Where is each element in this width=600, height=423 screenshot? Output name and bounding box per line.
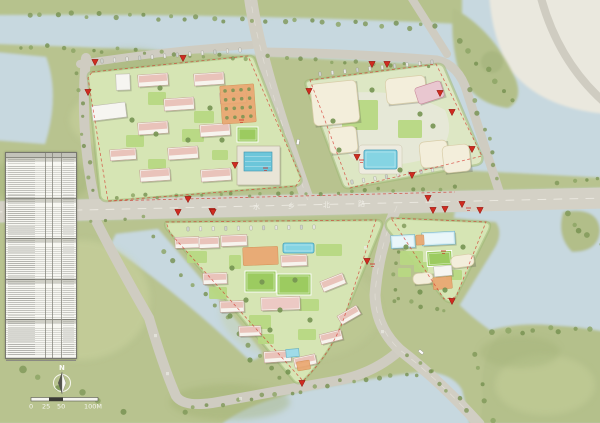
tree bbox=[156, 17, 160, 21]
tree bbox=[530, 328, 535, 333]
tree bbox=[363, 188, 367, 192]
tree bbox=[81, 101, 85, 105]
tree bbox=[325, 384, 330, 389]
parked-car bbox=[331, 70, 334, 74]
tree bbox=[191, 283, 195, 287]
tree bbox=[276, 192, 280, 196]
parked-car bbox=[126, 57, 129, 61]
grove-tree bbox=[243, 297, 248, 302]
parked-car bbox=[393, 64, 396, 68]
tree bbox=[489, 329, 495, 335]
tree bbox=[481, 382, 485, 386]
building-white bbox=[116, 74, 132, 92]
tree bbox=[584, 232, 590, 238]
tree bbox=[482, 398, 487, 403]
tree bbox=[240, 17, 245, 22]
tree bbox=[491, 163, 495, 167]
grove-tree bbox=[460, 244, 465, 249]
scale-tick-label: 0 bbox=[29, 403, 33, 411]
tree bbox=[520, 331, 525, 336]
grove-tree bbox=[227, 313, 232, 318]
tree bbox=[104, 219, 107, 222]
building-lawn bbox=[187, 251, 207, 263]
site-plan: 水乡北路 N 02550100M bbox=[0, 0, 600, 423]
tree bbox=[596, 177, 599, 180]
tree bbox=[379, 24, 384, 29]
tree bbox=[442, 309, 445, 312]
building-lawn bbox=[298, 329, 316, 340]
building-res bbox=[138, 73, 170, 89]
building-court bbox=[237, 127, 258, 142]
grove-tree bbox=[403, 244, 408, 249]
tree bbox=[258, 192, 261, 195]
building-pool bbox=[283, 243, 314, 253]
tree bbox=[488, 137, 492, 141]
tree bbox=[29, 45, 33, 49]
parked-car bbox=[239, 48, 242, 52]
parked-car bbox=[212, 226, 214, 230]
tree bbox=[37, 12, 42, 17]
grove-tree bbox=[417, 289, 422, 294]
tree bbox=[464, 408, 469, 413]
tree bbox=[483, 128, 487, 132]
parked-car bbox=[237, 226, 239, 230]
building-res bbox=[281, 255, 309, 268]
tree bbox=[388, 373, 393, 378]
building-res bbox=[164, 97, 196, 113]
parked-car bbox=[226, 49, 229, 53]
tree bbox=[89, 220, 92, 223]
tree bbox=[472, 352, 477, 357]
scale-tick-label: 25 bbox=[42, 403, 50, 411]
tree bbox=[330, 61, 333, 64]
illegible-road-label bbox=[364, 246, 367, 249]
tree bbox=[212, 16, 217, 21]
tree bbox=[19, 46, 22, 49]
tree bbox=[502, 89, 506, 93]
tree bbox=[576, 228, 582, 234]
tree bbox=[221, 20, 225, 24]
tree bbox=[76, 88, 80, 92]
tree bbox=[151, 235, 155, 239]
tree bbox=[260, 393, 265, 398]
tree bbox=[169, 14, 173, 18]
grove-tree bbox=[267, 327, 272, 332]
tree bbox=[250, 398, 254, 402]
tree bbox=[71, 48, 76, 53]
tree bbox=[193, 14, 198, 19]
building-res bbox=[201, 168, 233, 184]
parked-car bbox=[350, 180, 353, 185]
building-res bbox=[220, 301, 246, 314]
tree bbox=[377, 376, 382, 381]
grove-tree bbox=[336, 147, 341, 152]
tree bbox=[56, 12, 61, 17]
tree bbox=[142, 215, 146, 219]
tree bbox=[258, 354, 262, 358]
grove-tree bbox=[397, 167, 402, 172]
tree bbox=[200, 194, 203, 197]
river-left bbox=[0, 52, 53, 144]
building-lawn bbox=[148, 92, 166, 105]
indicators-table bbox=[5, 152, 77, 359]
parked-car bbox=[214, 50, 217, 54]
building-orange bbox=[243, 246, 279, 265]
building-res bbox=[221, 235, 249, 248]
tree bbox=[435, 307, 439, 311]
illegible-road-label bbox=[166, 372, 169, 375]
tree bbox=[299, 390, 303, 394]
tree bbox=[350, 190, 354, 194]
parked-car bbox=[381, 65, 384, 69]
tree bbox=[574, 327, 578, 331]
tree bbox=[272, 392, 277, 397]
tree bbox=[587, 326, 592, 331]
map-svg: 水乡北路 N 02550100M bbox=[0, 0, 600, 423]
parked-car bbox=[187, 227, 189, 231]
parked-car bbox=[356, 68, 359, 72]
tree bbox=[290, 191, 294, 195]
parked-car bbox=[113, 58, 116, 62]
tree bbox=[415, 374, 419, 378]
building-lawn bbox=[299, 299, 319, 311]
illegible-road-label bbox=[381, 330, 384, 333]
tree bbox=[116, 47, 120, 51]
building-cream bbox=[413, 272, 435, 286]
tree bbox=[115, 196, 119, 200]
tree bbox=[419, 361, 423, 365]
building-res bbox=[110, 148, 138, 162]
indicators-table-text-smudge bbox=[8, 158, 35, 356]
tree bbox=[458, 396, 463, 401]
tree bbox=[429, 369, 433, 373]
tree bbox=[320, 20, 325, 25]
tree bbox=[80, 133, 83, 136]
parked-car bbox=[362, 178, 365, 183]
tree bbox=[62, 46, 66, 50]
grove-tree bbox=[442, 287, 447, 292]
tree bbox=[439, 188, 443, 192]
tree bbox=[88, 160, 92, 164]
tree bbox=[19, 366, 27, 374]
tree bbox=[75, 71, 79, 75]
grove-tree bbox=[153, 131, 158, 136]
tree bbox=[205, 403, 209, 407]
tree bbox=[397, 297, 400, 300]
road-name-label: 路 bbox=[358, 199, 365, 208]
tree bbox=[465, 48, 471, 54]
tree bbox=[338, 378, 342, 382]
building-res bbox=[140, 168, 172, 184]
building-lawn bbox=[194, 111, 214, 123]
road-name-label: 水 bbox=[253, 202, 260, 211]
tree bbox=[394, 21, 399, 26]
tree bbox=[418, 305, 423, 310]
tree bbox=[246, 343, 251, 348]
tree bbox=[409, 299, 413, 303]
parked-car bbox=[431, 60, 434, 64]
building-court bbox=[427, 250, 453, 266]
grove-tree bbox=[369, 87, 374, 92]
tree bbox=[313, 384, 317, 388]
tree bbox=[217, 53, 221, 57]
tree bbox=[156, 196, 159, 199]
scale-bar-dark-segment bbox=[49, 398, 63, 402]
tree bbox=[314, 57, 318, 61]
building-cyanchip bbox=[286, 349, 300, 358]
grove-circle bbox=[481, 51, 503, 73]
tree bbox=[573, 223, 577, 227]
tree bbox=[467, 87, 472, 92]
tree bbox=[421, 187, 425, 191]
tree bbox=[495, 177, 499, 181]
parked-car bbox=[419, 169, 422, 174]
parked-car bbox=[406, 62, 409, 66]
tree bbox=[291, 392, 295, 396]
building-lawn bbox=[148, 159, 166, 169]
tree bbox=[123, 218, 126, 221]
grove-tree bbox=[259, 279, 264, 284]
building-lawn bbox=[398, 120, 422, 138]
parked-car bbox=[176, 53, 179, 57]
tree bbox=[292, 18, 296, 22]
building-orange bbox=[220, 84, 257, 124]
north-label: N bbox=[59, 364, 65, 372]
parked-car bbox=[262, 226, 264, 230]
tree bbox=[363, 21, 368, 26]
tree bbox=[453, 185, 457, 189]
building-res bbox=[239, 326, 263, 338]
tree bbox=[244, 57, 248, 61]
tree bbox=[220, 193, 223, 196]
road-name-label: 北 bbox=[323, 201, 330, 209]
tree bbox=[85, 15, 89, 19]
building-cream bbox=[310, 80, 362, 128]
tree bbox=[391, 272, 395, 276]
parked-car bbox=[385, 174, 388, 179]
tree bbox=[160, 50, 164, 54]
parked-car bbox=[368, 66, 371, 70]
building-cream bbox=[328, 125, 360, 155]
tree bbox=[394, 261, 398, 265]
tree bbox=[376, 187, 380, 191]
building-court bbox=[277, 274, 311, 295]
tree bbox=[79, 389, 85, 395]
parked-car bbox=[250, 226, 252, 230]
grove-tree bbox=[157, 85, 162, 90]
building-res bbox=[199, 237, 221, 250]
building-res bbox=[200, 123, 232, 139]
tree bbox=[269, 366, 274, 371]
parked-car bbox=[373, 176, 376, 181]
building-res bbox=[194, 72, 226, 88]
tree bbox=[231, 56, 235, 60]
scale-bar-body bbox=[31, 398, 98, 402]
tree bbox=[354, 59, 358, 63]
tree bbox=[397, 250, 400, 253]
indicators-table-gridline bbox=[52, 153, 53, 358]
tree bbox=[405, 373, 409, 377]
tree bbox=[444, 389, 448, 393]
tree bbox=[394, 288, 398, 292]
indicators-table-gridline bbox=[45, 153, 46, 358]
tree bbox=[183, 17, 187, 21]
tree bbox=[179, 273, 183, 277]
parked-car bbox=[319, 72, 322, 76]
tree bbox=[97, 11, 102, 16]
tree bbox=[393, 299, 397, 303]
grove-tree bbox=[185, 137, 190, 142]
tree bbox=[183, 410, 188, 415]
tree bbox=[548, 325, 553, 330]
tree bbox=[35, 375, 40, 380]
tree bbox=[86, 176, 90, 180]
tree bbox=[202, 55, 205, 58]
tree bbox=[221, 403, 225, 407]
tree bbox=[143, 193, 147, 197]
tree bbox=[134, 48, 138, 52]
tree bbox=[405, 353, 409, 357]
parked-car bbox=[343, 69, 346, 73]
grove-tree bbox=[219, 137, 224, 142]
illegible-road-label bbox=[154, 334, 157, 337]
tree bbox=[263, 19, 267, 23]
tree bbox=[121, 409, 127, 415]
tree bbox=[403, 62, 406, 65]
scale-tick-label: 50 bbox=[57, 403, 65, 411]
grove-tree bbox=[292, 277, 297, 282]
tree bbox=[432, 23, 437, 28]
parked-car bbox=[151, 55, 154, 59]
road-name-label: 乡 bbox=[288, 202, 295, 210]
grove-tree bbox=[330, 118, 335, 123]
tree bbox=[336, 22, 341, 27]
tree bbox=[411, 187, 415, 191]
tree bbox=[100, 50, 104, 54]
tree bbox=[364, 377, 369, 382]
grove-tree bbox=[247, 357, 252, 362]
tree bbox=[229, 192, 233, 196]
tree bbox=[407, 26, 412, 31]
parked-car bbox=[313, 225, 315, 229]
tree bbox=[353, 20, 357, 24]
tree bbox=[505, 328, 511, 334]
tree bbox=[82, 144, 86, 148]
tree bbox=[143, 52, 146, 55]
parked-car bbox=[188, 52, 191, 56]
parked-car bbox=[418, 61, 421, 65]
building-orange bbox=[433, 276, 453, 290]
tree bbox=[191, 405, 195, 409]
tree bbox=[213, 304, 217, 308]
indicators-table-text-smudge bbox=[63, 158, 74, 356]
tree bbox=[437, 382, 441, 386]
building-cyan bbox=[422, 231, 457, 247]
tree bbox=[28, 13, 33, 18]
building-orange bbox=[416, 235, 425, 245]
grove-tree bbox=[277, 307, 282, 312]
tree bbox=[248, 195, 251, 198]
parked-car bbox=[199, 227, 201, 231]
tree bbox=[573, 179, 577, 183]
tree bbox=[352, 380, 356, 384]
tree bbox=[490, 150, 494, 154]
building-res bbox=[168, 146, 200, 162]
grove-tree bbox=[207, 105, 212, 110]
parked-car bbox=[101, 59, 104, 63]
tree bbox=[91, 189, 94, 192]
scale-tick-label: 100M bbox=[84, 403, 102, 411]
tree bbox=[204, 292, 208, 296]
tree bbox=[285, 56, 289, 60]
tree bbox=[141, 13, 145, 17]
tree bbox=[474, 62, 478, 66]
tree bbox=[92, 49, 95, 52]
tree bbox=[472, 98, 477, 103]
grove-tree bbox=[285, 369, 290, 374]
tree bbox=[419, 23, 423, 27]
tree bbox=[277, 376, 281, 380]
tree bbox=[114, 15, 119, 20]
tree bbox=[170, 258, 175, 263]
building-lawn bbox=[316, 244, 342, 256]
tree bbox=[128, 13, 132, 17]
grove-tree bbox=[307, 317, 312, 322]
tree bbox=[81, 115, 84, 118]
tree bbox=[391, 189, 395, 193]
parked-car bbox=[225, 226, 227, 230]
parked-car bbox=[163, 54, 166, 58]
tree bbox=[402, 224, 407, 229]
tree bbox=[457, 38, 463, 44]
tree bbox=[172, 52, 176, 56]
building-orange bbox=[296, 360, 310, 371]
building-pool bbox=[364, 150, 397, 169]
tree bbox=[585, 178, 588, 181]
illegible-road-label bbox=[239, 397, 242, 400]
parked-car bbox=[275, 225, 277, 229]
tree bbox=[265, 54, 269, 58]
tree bbox=[565, 211, 571, 217]
tree bbox=[486, 67, 491, 72]
building-lawn bbox=[414, 262, 428, 272]
tree bbox=[45, 43, 50, 48]
tree bbox=[343, 61, 346, 64]
tree bbox=[476, 366, 480, 370]
tree bbox=[304, 192, 307, 195]
tree bbox=[492, 79, 498, 85]
parked-car bbox=[201, 51, 204, 55]
tree bbox=[310, 18, 314, 22]
building-lawn bbox=[398, 268, 411, 277]
grove-tree bbox=[229, 265, 234, 270]
tree bbox=[556, 329, 561, 334]
parked-car bbox=[300, 225, 302, 229]
building-lawn bbox=[126, 135, 144, 147]
tree bbox=[283, 19, 288, 24]
tree bbox=[298, 56, 303, 61]
tree bbox=[389, 63, 393, 67]
tree bbox=[69, 10, 74, 15]
building-lawn bbox=[212, 150, 228, 160]
tree bbox=[131, 193, 135, 197]
tree bbox=[337, 192, 340, 195]
tree bbox=[474, 111, 479, 116]
grove-tree bbox=[417, 111, 422, 116]
tree bbox=[250, 19, 254, 23]
grove-tree bbox=[129, 117, 134, 122]
grove-tree bbox=[430, 123, 435, 128]
